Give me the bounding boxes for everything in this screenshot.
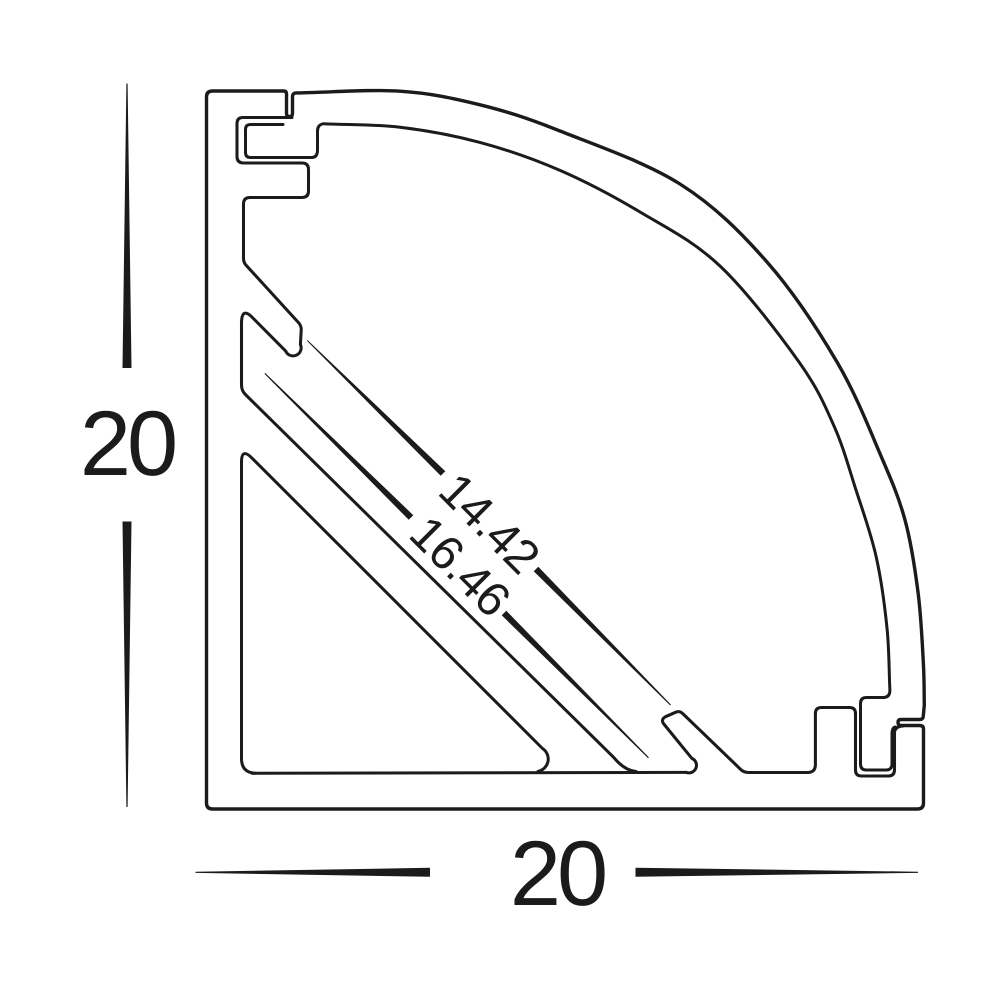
svg-text:20: 20: [80, 393, 175, 495]
svg-text:20: 20: [510, 823, 605, 925]
